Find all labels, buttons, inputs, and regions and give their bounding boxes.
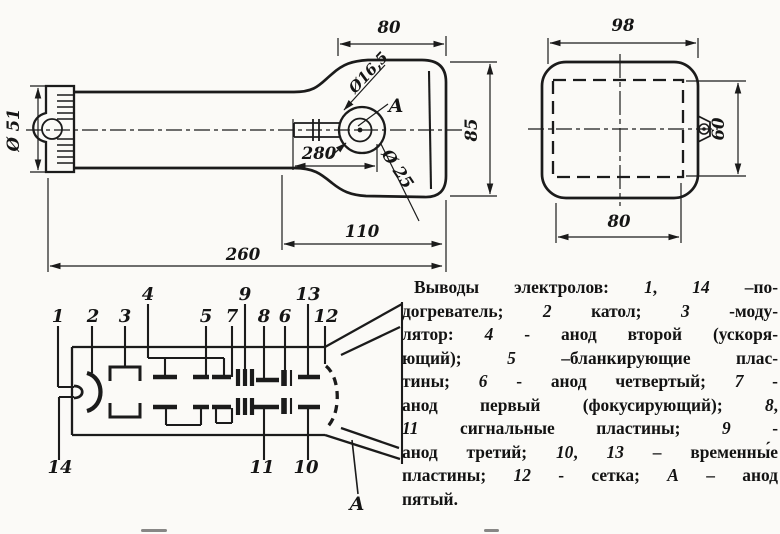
dim-anode-cap-large: Ø 25 xyxy=(377,144,419,221)
legend-text: – временны́е xyxy=(624,442,778,462)
anode-callout-A: A xyxy=(358,95,403,126)
base-pins-hatching xyxy=(57,95,73,163)
legend-text: - xyxy=(731,418,778,438)
dim-raster-height-60: 60 xyxy=(686,81,746,176)
dim-face-width-98: 98 xyxy=(548,16,698,64)
legend-ref-number: 13 xyxy=(607,442,624,462)
anode-A-callout: A xyxy=(348,440,365,515)
legend-text: пластины; xyxy=(402,465,514,485)
dim-label-anode-offset: 280 xyxy=(301,144,337,163)
pin-label-6: 6 xyxy=(279,306,292,327)
legend-line: анод первый (фокусирующий); 8, xyxy=(402,394,778,418)
legend-ref-number: 3 xyxy=(681,301,690,321)
dim-label-raster-height: 60 xyxy=(709,117,728,140)
pin-labels: 1 2 3 4 5 7 9 8 6 13 12 14 11 10 xyxy=(47,284,338,478)
dim-label-bulb-width: 80 xyxy=(377,18,401,37)
pin-label-12: 12 xyxy=(313,306,338,327)
legend-ref-number: 11 xyxy=(402,418,418,438)
modulator-element xyxy=(110,367,140,417)
dim-anode-offset-280: 280 xyxy=(293,119,377,172)
pin-label-8: 8 xyxy=(257,306,271,327)
legend-ref-number: 9 xyxy=(722,418,731,438)
legend-line: тины; 6 - анод четвертый; 7 - xyxy=(402,370,778,394)
dim-total-length-260: 260 xyxy=(48,178,446,272)
electrode-diagram: A 1 2 3 4 5 7 9 8 6 13 12 14 11 10 xyxy=(0,268,410,534)
pin-label-1: 1 xyxy=(52,306,65,327)
base-tip-circle xyxy=(42,119,62,139)
legend-text: , xyxy=(573,442,606,462)
anode-electrodes-top xyxy=(153,369,320,386)
screen-outline xyxy=(528,54,718,206)
anode-electrodes-bottom xyxy=(153,398,320,415)
screen-inner-face-line xyxy=(429,71,431,189)
legend-line: догреватель; 2 катол; 3 -моду- xyxy=(402,300,778,324)
heater-element xyxy=(74,386,82,398)
anode-label: A xyxy=(387,95,404,117)
legend-line: Выводы электролов: 1, 14 –по- xyxy=(402,276,778,300)
legend-ref-number: 14 xyxy=(692,277,709,297)
legend-ref-number: 10 xyxy=(556,442,573,462)
tube-envelope-outline xyxy=(74,60,446,197)
legend-text: – анод xyxy=(679,465,778,485)
legend-line: пятый. xyxy=(402,488,778,512)
dim-label-anode-cap-small: Ø16,5 xyxy=(344,48,392,97)
legend-text: догреватель; xyxy=(402,301,543,321)
legend-line: 11 сигнальные пластины; 9 - xyxy=(402,417,778,441)
legend-ref-number: 2 xyxy=(543,301,552,321)
legend-ref-number: А xyxy=(667,465,679,485)
legend-text: анод третий; xyxy=(402,442,556,462)
dim-raster-width-80: 80 xyxy=(556,183,681,243)
pin-label-11: 11 xyxy=(249,457,274,478)
legend-text: - анод четвертый; xyxy=(487,371,734,391)
dim-label-screen-height: 85 xyxy=(462,119,481,143)
figure-crt-tube-drawing: Ø 51 80 85 280 110 260 xyxy=(0,0,780,534)
legend-text: –бланкирующие плас- xyxy=(516,348,778,368)
pin-label-7: 7 xyxy=(226,306,239,327)
dim-label-bulb-length: 110 xyxy=(345,222,380,241)
dim-label-raster-width: 80 xyxy=(607,212,631,231)
legend-text: - анод второй (ускоря- xyxy=(493,324,778,344)
dim-label-total-length: 260 xyxy=(225,245,261,264)
legend-ref-number: 1 xyxy=(644,277,653,297)
legend-text: пятый. xyxy=(402,489,458,509)
legend-line: лятор: 4 - анод второй (ускоря- xyxy=(402,323,778,347)
legend-text: тины; xyxy=(402,371,479,391)
pin-label-3: 3 xyxy=(119,306,132,327)
legend-line: пластины; 12 - сетка; А – анод xyxy=(402,464,778,488)
pin-label-5: 5 xyxy=(200,306,213,327)
legend-text: - xyxy=(743,371,778,391)
pin-label-9: 9 xyxy=(239,284,252,305)
grid-mesh-element xyxy=(326,366,337,428)
legend-text: Выводы электролов: xyxy=(414,277,644,297)
tube-base-cap xyxy=(33,86,74,172)
dim-bulb-width-80: 80 xyxy=(338,18,446,56)
legend-text: лятор: xyxy=(402,324,485,344)
dim-bulb-length-110: 110 xyxy=(282,175,442,250)
legend-ref-number: 5 xyxy=(507,348,516,368)
legend-text: , xyxy=(653,277,692,297)
legend-ref-number: 12 xyxy=(514,465,531,485)
legend-text: - сетка; xyxy=(531,465,667,485)
scan-artifact xyxy=(141,529,167,532)
legend-line: ющий); 5 –бланкирующие плас- xyxy=(402,347,778,371)
legend-text: –по- xyxy=(710,277,778,297)
legend-text: катол; xyxy=(552,301,681,321)
gun-anode-label: A xyxy=(348,493,365,515)
dim-label-face-width: 98 xyxy=(612,16,635,35)
crt-side-view: Ø 51 80 85 280 110 260 xyxy=(0,0,520,280)
dim-screen-height-85: 85 xyxy=(450,62,497,196)
legend-text: , xyxy=(774,395,778,415)
pin-label-2: 2 xyxy=(86,306,100,327)
legend-text: -моду- xyxy=(690,301,778,321)
legend-text: анод первый (фокусирующий); xyxy=(402,395,765,415)
legend-text: сигнальные пластины; xyxy=(418,418,722,438)
legend-text: ющий); xyxy=(402,348,507,368)
legend-ref-number: 4 xyxy=(485,324,494,344)
dim-neck-diameter: Ø 51 xyxy=(4,86,46,172)
legend-ref-number: 8 xyxy=(765,395,774,415)
pin-label-10: 10 xyxy=(293,457,319,478)
pin-label-13: 13 xyxy=(295,284,320,305)
scan-artifact xyxy=(484,529,499,532)
dim-label-neck-diameter: Ø 51 xyxy=(4,108,23,152)
legend-lines: Выводы электролов: 1, 14 –по-догреватель… xyxy=(402,276,778,511)
pin-label-4: 4 xyxy=(142,284,155,305)
dim-label-anode-cap-large: Ø 25 xyxy=(377,145,417,192)
crt-front-view: 98 60 80 xyxy=(520,0,780,260)
legend-line: анод третий; 10, 13 – временны́е xyxy=(402,441,778,465)
cathode-element xyxy=(87,373,101,411)
pin-label-14: 14 xyxy=(47,457,72,478)
